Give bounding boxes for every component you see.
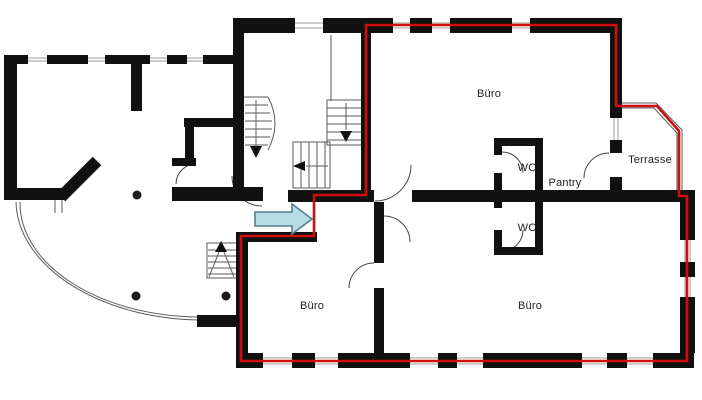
- floorplan-drawing: [0, 0, 702, 400]
- room-label-wc-lower: WC: [518, 222, 537, 234]
- room-label-buero-bottom-right: Büro: [518, 300, 542, 312]
- room-label-buero-bottom-left: Büro: [300, 300, 324, 312]
- room-label-wc-upper: WC: [518, 162, 537, 174]
- basement-stair: [207, 241, 237, 278]
- winder-stair: [244, 97, 275, 158]
- room-label-terrasse: Terrasse: [628, 154, 672, 166]
- floorplan: Büro WC Pantry Terrasse WC Büro Büro: [0, 0, 702, 400]
- entrance-arrow-icon: [255, 204, 312, 234]
- room-label-buero-top: Büro: [477, 88, 501, 100]
- walls: [4, 18, 695, 368]
- columns: [132, 191, 231, 301]
- room-label-pantry: Pantry: [549, 177, 582, 189]
- main-stair: [293, 35, 363, 188]
- terrace-outline: [622, 103, 682, 199]
- curved-wall-outline: [16, 200, 199, 320]
